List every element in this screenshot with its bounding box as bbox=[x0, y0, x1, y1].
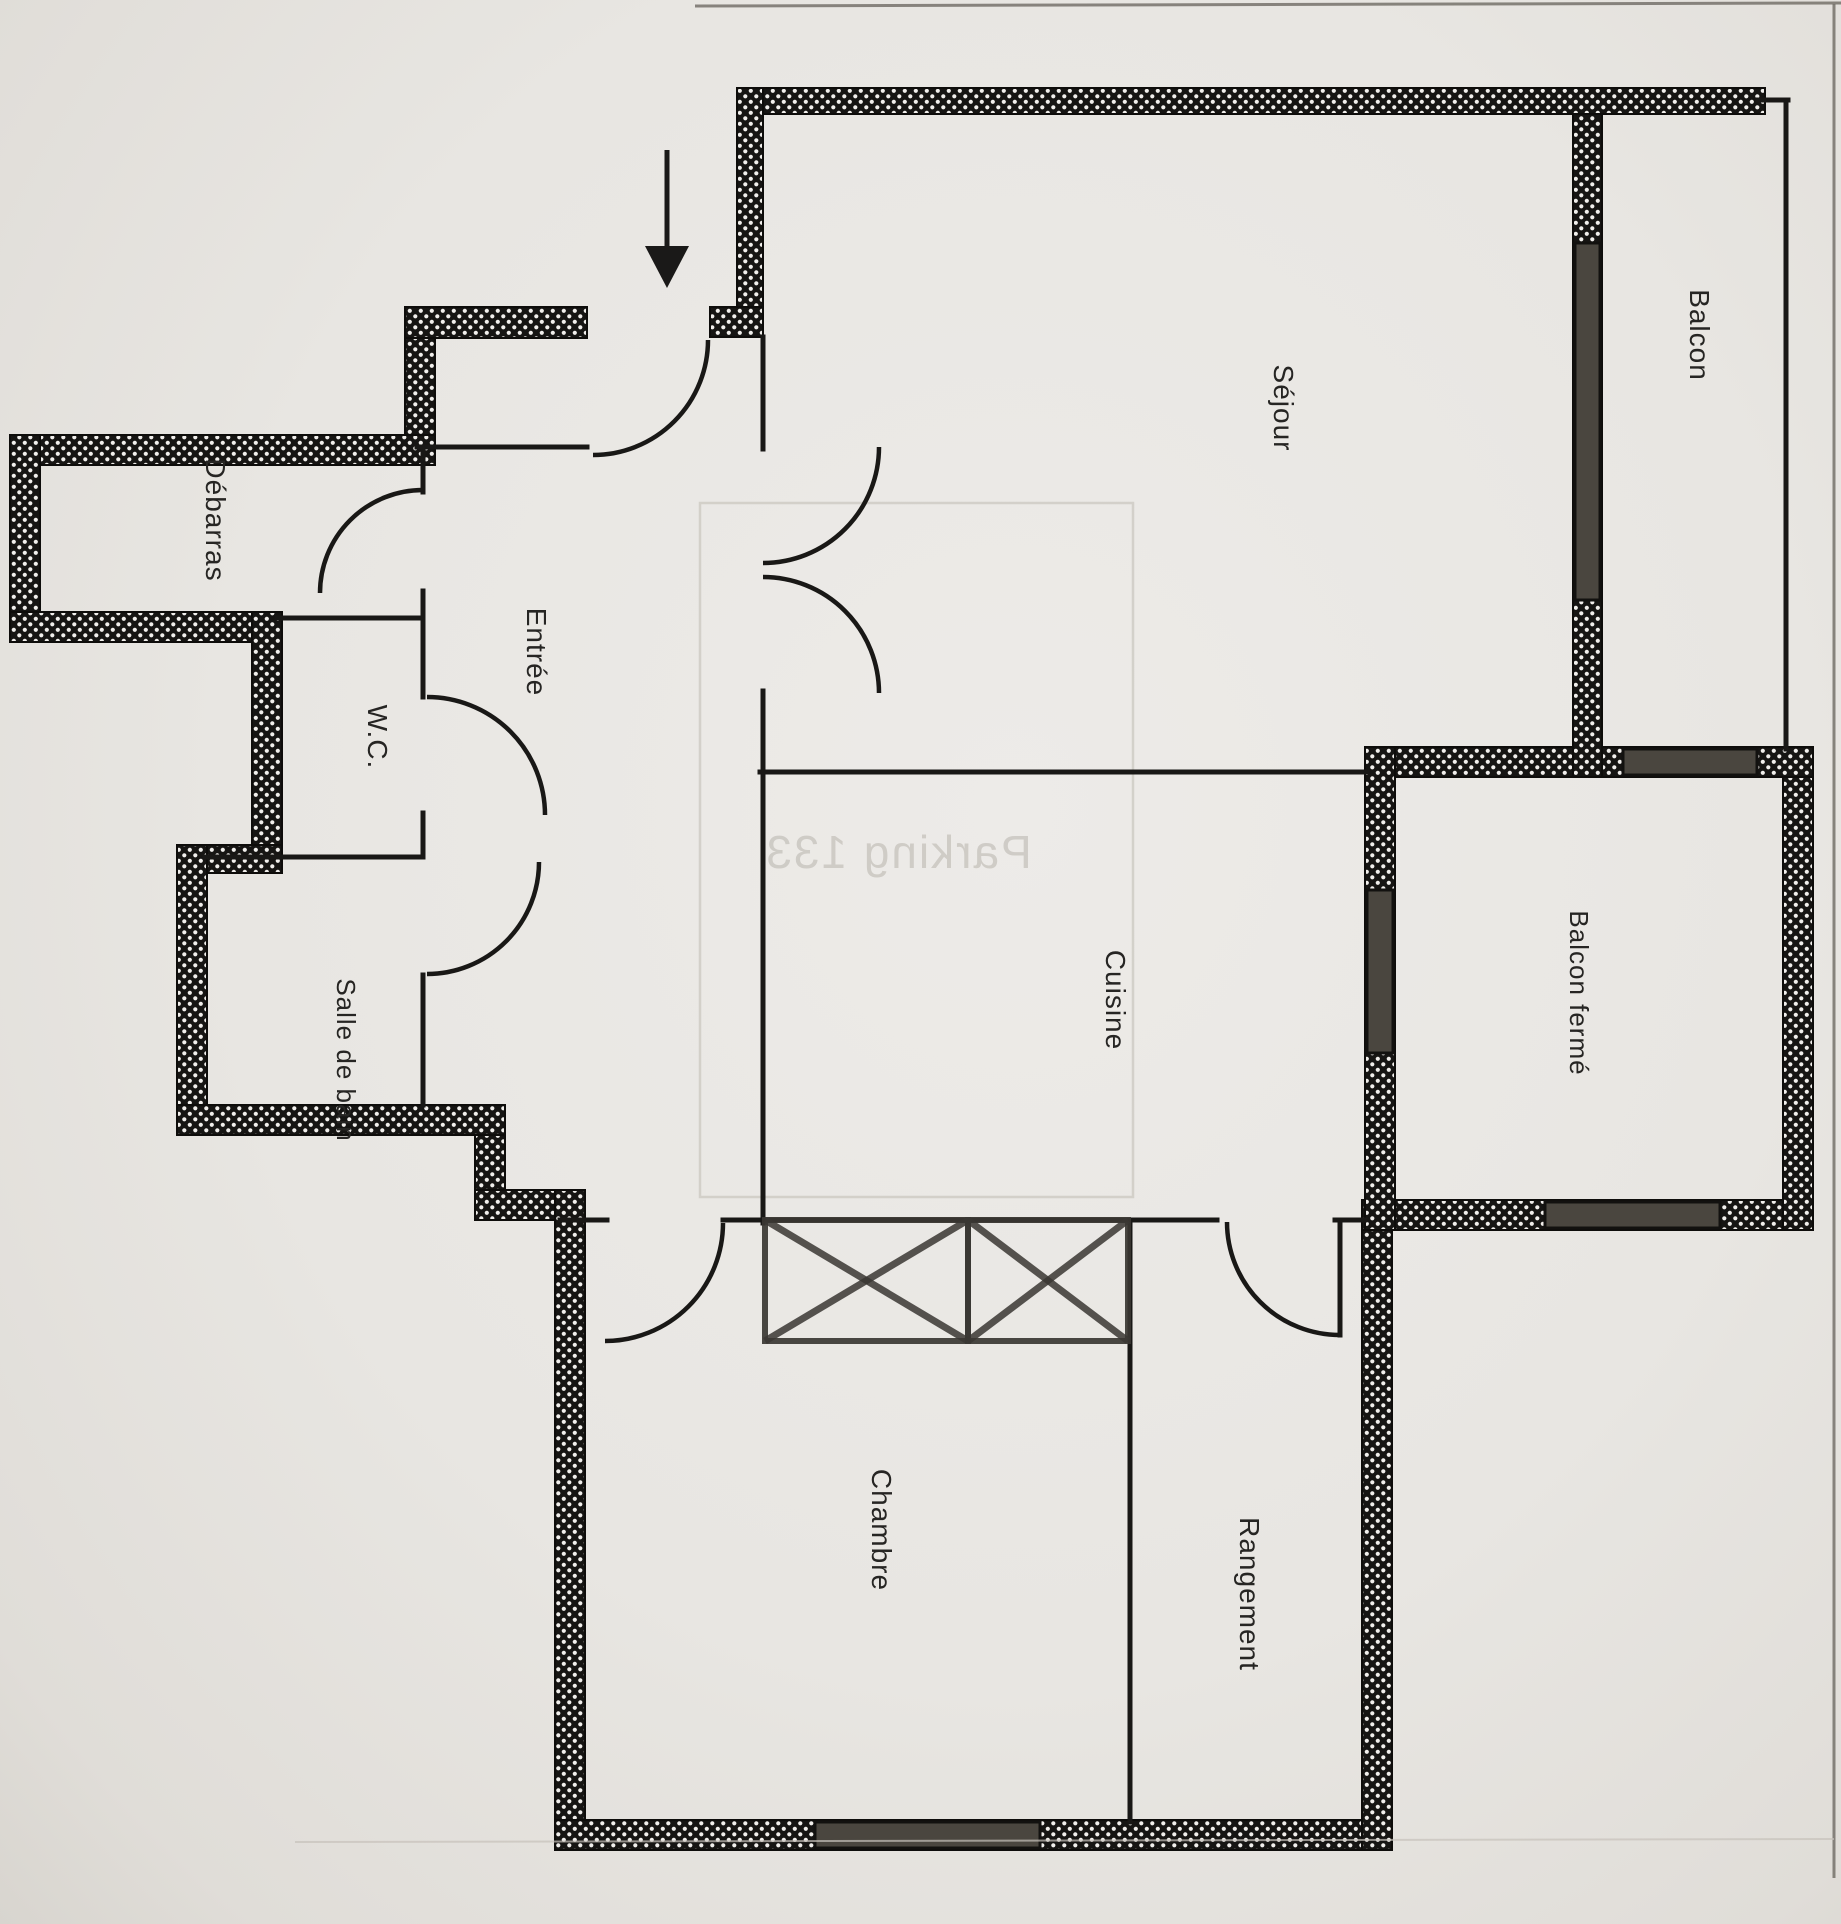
page-edge-line bbox=[695, 3, 1841, 6]
wc-door-arc bbox=[427, 697, 545, 815]
sejour-door-lower-arc bbox=[763, 577, 879, 693]
room-label-entree: Entrée bbox=[521, 608, 552, 697]
exterior-walls bbox=[10, 88, 1813, 1850]
wall-segment bbox=[10, 612, 282, 642]
room-label-cuisine: Cuisine bbox=[1100, 950, 1131, 1050]
window-bar bbox=[1623, 749, 1757, 775]
room-label-wc: W.C. bbox=[362, 705, 393, 770]
interior-walls bbox=[205, 100, 1788, 1822]
watermark-parking: Parking 133 bbox=[764, 826, 1032, 878]
wall-segment bbox=[1362, 1200, 1392, 1850]
room-label-balcon: Balcon bbox=[1684, 289, 1715, 381]
room-label-rangement: Rangement bbox=[1234, 1517, 1265, 1671]
closets bbox=[765, 1220, 1128, 1341]
wall-segment bbox=[177, 845, 207, 1135]
window-bar bbox=[1367, 890, 1393, 1053]
room-label-salle-de-bain: Salle de bain bbox=[331, 978, 361, 1141]
wall-segment bbox=[405, 307, 587, 338]
wall-segment bbox=[1783, 747, 1813, 1230]
wall-segment bbox=[710, 307, 763, 337]
floorplan-page: Parking 133BalconSéjourDébarrasW.C.Entré… bbox=[0, 0, 1841, 1924]
entry-door-arc bbox=[593, 340, 708, 455]
window-bar bbox=[1575, 243, 1600, 600]
debarras-door-arc bbox=[320, 490, 423, 593]
rangement-door-arc bbox=[1227, 1222, 1340, 1335]
chambre-door-arc bbox=[605, 1223, 723, 1341]
windows bbox=[815, 243, 1757, 1848]
room-label-debarras: Débarras bbox=[200, 458, 231, 581]
sejour-door-upper-arc bbox=[763, 447, 879, 563]
room-label-balcon-ferme: Balcon fermé bbox=[1564, 910, 1594, 1075]
wall-segment bbox=[252, 612, 282, 845]
room-label-sejour: Séjour bbox=[1268, 365, 1299, 452]
wall-segment bbox=[555, 1190, 585, 1850]
bath-door-arc bbox=[427, 862, 539, 974]
wall-segment bbox=[10, 435, 40, 642]
window-bar bbox=[1545, 1202, 1720, 1228]
floor-plan: Parking 133BalconSéjourDébarrasW.C.Entré… bbox=[0, 0, 1841, 1924]
room-label-chambre: Chambre bbox=[866, 1469, 897, 1591]
wall-segment bbox=[737, 88, 763, 337]
room-labels: BalconSéjourDébarrasW.C.EntréeSalle de b… bbox=[200, 289, 1715, 1671]
page-edge-lines bbox=[295, 3, 1841, 1878]
entrance-arrow-icon bbox=[645, 150, 689, 288]
window-bar bbox=[815, 1822, 1040, 1848]
wall-segment bbox=[737, 88, 1765, 114]
